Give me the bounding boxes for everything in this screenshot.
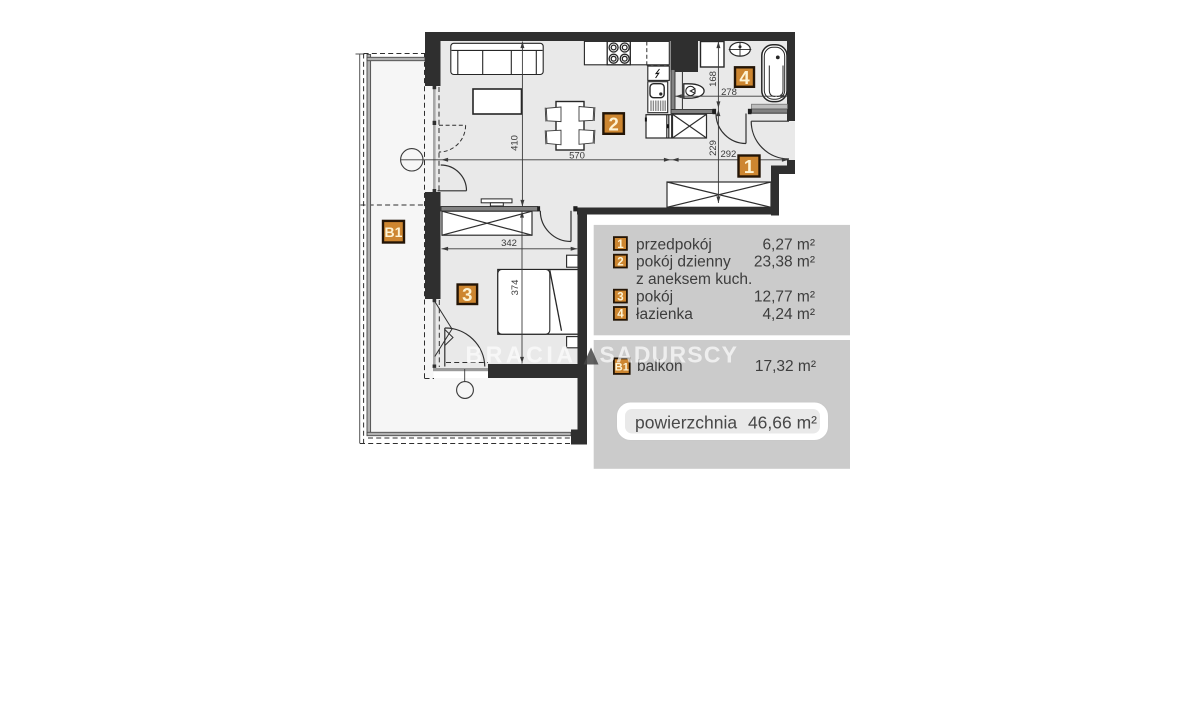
svg-text:6,27 m²: 6,27 m²: [762, 236, 815, 253]
svg-text:SADURSCY: SADURSCY: [600, 342, 739, 368]
svg-text:przedpokój: przedpokój: [636, 236, 712, 253]
svg-text:17,32 m²: 17,32 m²: [755, 358, 816, 375]
svg-text:570: 570: [569, 150, 585, 161]
svg-text:4: 4: [739, 67, 750, 88]
svg-text:1: 1: [744, 156, 754, 177]
svg-text:łazienka: łazienka: [636, 306, 693, 323]
svg-text:46,66 m²: 46,66 m²: [748, 413, 817, 433]
svg-text:1: 1: [617, 239, 624, 251]
svg-text:410: 410: [510, 135, 521, 151]
svg-text:z aneksem kuch.: z aneksem kuch.: [636, 271, 752, 288]
svg-text:278: 278: [721, 87, 737, 98]
svg-text:2: 2: [608, 113, 618, 134]
svg-text:168: 168: [708, 71, 719, 87]
svg-text:374: 374: [510, 280, 521, 296]
svg-text:2: 2: [617, 256, 623, 268]
svg-text:3: 3: [617, 291, 623, 303]
svg-text:12,77 m²: 12,77 m²: [754, 289, 815, 306]
svg-text:292: 292: [720, 149, 736, 160]
svg-text:23,38 m²: 23,38 m²: [754, 254, 815, 271]
svg-text:B1: B1: [385, 224, 403, 240]
svg-text:BRACIA: BRACIA: [466, 342, 577, 368]
svg-text:pokój: pokój: [636, 289, 673, 306]
svg-text:4,24 m²: 4,24 m²: [762, 306, 815, 323]
svg-text:powierzchnia: powierzchnia: [635, 413, 737, 433]
svg-text:pokój dzienny: pokój dzienny: [636, 254, 731, 271]
svg-text:4: 4: [617, 309, 624, 321]
svg-text:3: 3: [462, 284, 472, 305]
svg-text:342: 342: [501, 238, 517, 249]
svg-text:229: 229: [708, 140, 719, 156]
